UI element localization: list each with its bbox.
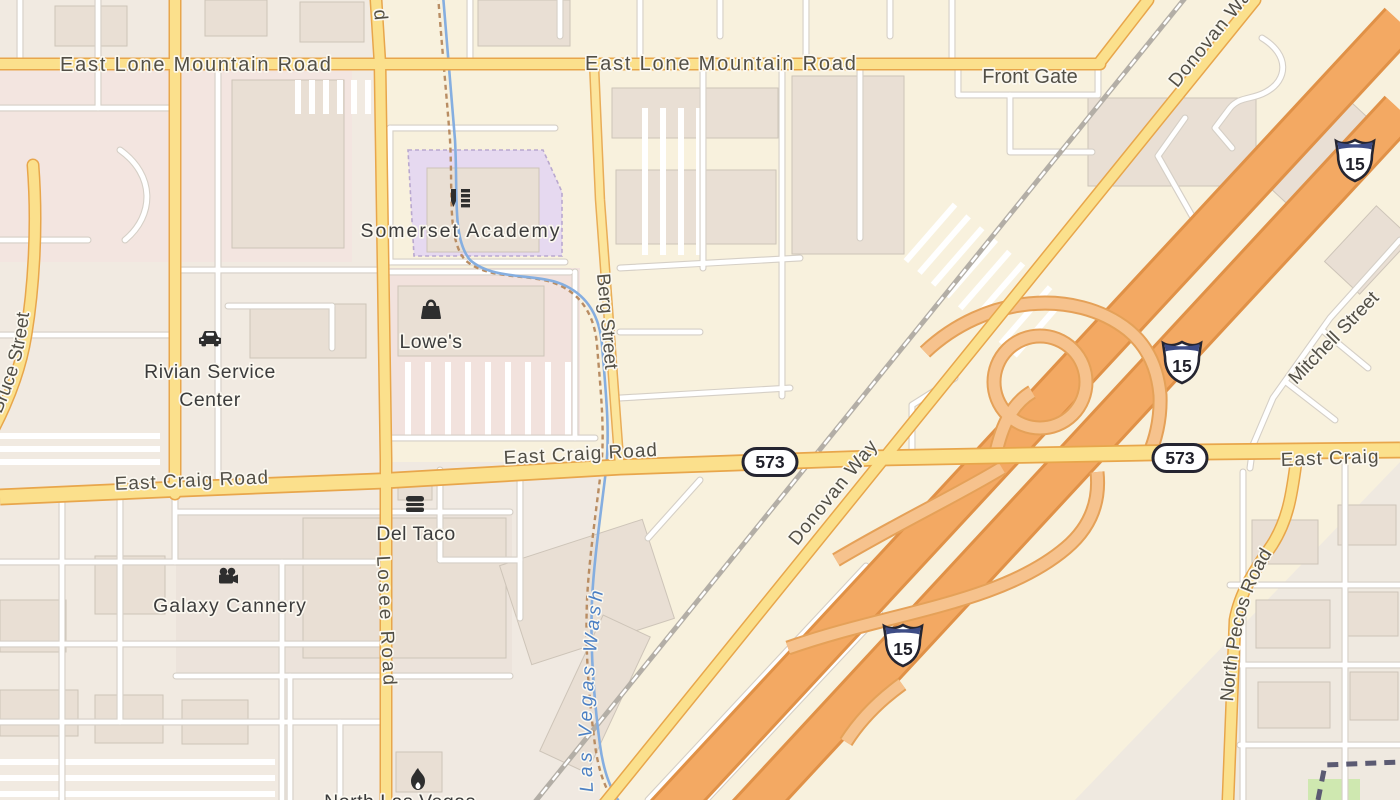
grass-patch	[1308, 779, 1360, 800]
poi-label-del-taco: Del Taco	[376, 523, 456, 545]
svg-text:15: 15	[1345, 154, 1365, 174]
svg-text:15: 15	[893, 639, 913, 659]
route-573-shield: 573	[1153, 445, 1207, 472]
poi-label-rivian-line1: Rivian Service	[144, 361, 276, 383]
poi-label-galaxy-cannery: Galaxy Cannery	[153, 595, 307, 617]
road-label-east-lone-mountain-1: East Lone Mountain Road	[60, 54, 333, 76]
svg-text:15: 15	[1172, 356, 1192, 376]
poi-label-lowes: Lowe's	[399, 331, 462, 353]
burger-icon[interactable]	[406, 496, 424, 512]
road-label-east-craig-east: East Craig	[1280, 447, 1379, 471]
road-label-east-lone-mountain-2: East Lone Mountain Road	[585, 53, 858, 75]
poi-label-clipped-bottom: North Las Vegas	[324, 791, 476, 800]
road-label-fragment: d	[369, 9, 391, 21]
place-label-front-gate: Front Gate	[982, 66, 1078, 88]
svg-text:573: 573	[755, 452, 784, 472]
map-canvas[interactable]: 15 15 15 573 573 East Lone Mountain Road…	[0, 0, 1400, 800]
svg-text:573: 573	[1165, 448, 1194, 468]
poi-label-somerset-academy: Somerset Academy	[360, 220, 561, 242]
route-573-shield: 573	[743, 449, 797, 476]
poi-label-rivian-line2: Center	[179, 389, 241, 411]
